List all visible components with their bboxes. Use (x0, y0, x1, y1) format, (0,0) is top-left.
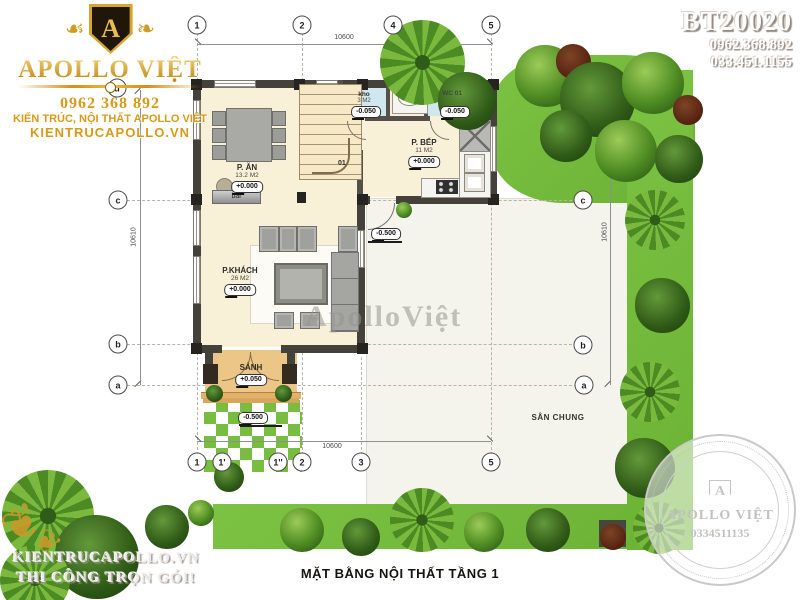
flourish-left-icon: ☙ (65, 18, 85, 40)
grid-bubble: c (574, 191, 593, 210)
column (297, 192, 306, 203)
shrub-maroon (600, 524, 626, 550)
column (191, 194, 202, 205)
dining-chair (212, 128, 226, 143)
brand-website: KIENTRUCAPOLLO.VN (6, 125, 214, 140)
seal-brand-name: APOLLO VIỆT (666, 508, 774, 524)
grid-bubble: 1'' (269, 453, 288, 472)
level-badge-hall: +0.050 (235, 374, 267, 386)
room-name: SẢNH (240, 363, 263, 372)
room-label-hall: SẢNH (240, 363, 263, 372)
grid-bubble: 2 (293, 453, 312, 472)
brand-seal: A APOLLO VIỆT 0334511135 (644, 434, 796, 586)
project-code: BT20020 (560, 6, 792, 37)
tree (280, 508, 324, 552)
shrub (396, 202, 412, 218)
dining-chair (272, 128, 286, 143)
stove (436, 180, 458, 194)
tree (342, 518, 380, 556)
dining-chair (212, 145, 226, 160)
level-badge-dining: +0.000 (231, 181, 263, 193)
porch-pillar (282, 364, 297, 384)
room-label-storage: kho 3 M2 (357, 91, 370, 105)
tree (620, 362, 680, 422)
dining-chair (212, 111, 226, 126)
dining-table (226, 108, 272, 162)
room-area: 13.2 M2 (235, 172, 259, 179)
armchair (338, 226, 358, 252)
dimension-text-right: 10610 (602, 222, 609, 241)
window (214, 80, 256, 88)
brand-monogram: A (92, 7, 130, 51)
column (357, 343, 368, 354)
brand-phone: 0962 368 892 (6, 95, 214, 113)
brand-tagline: KIẾN TRÚC, NỘI THẤT APOLLO VIỆT (6, 113, 214, 125)
level-badge-side-entry: -0.500 (371, 228, 401, 240)
shrub-maroon (673, 95, 703, 125)
room-name: WC 01 (442, 90, 462, 97)
project-phone-1: 0962.368.892 (560, 37, 792, 54)
watermark-slogan: THI CÔNG TRỌN GÓI! (6, 568, 206, 588)
yard-label: SÂN CHUNG (532, 413, 585, 422)
room-label-living: P.KHÁCH 26 M2 (222, 266, 257, 283)
dimension-line-bottom (197, 441, 491, 442)
grid-bubble: 3 (352, 453, 371, 472)
brand-name: APOLLO VIỆT (6, 56, 214, 84)
seal-monogram: A (709, 480, 731, 505)
dimension-text-top: 10600 (334, 34, 353, 41)
brand-logo-block: ☙ A ❧ APOLLO VIỆT 0962 368 892 KIẾN TRÚC… (6, 4, 214, 140)
brand-crest: ☙ A ❧ (6, 4, 214, 54)
kitchen-sink (464, 154, 485, 173)
level-badge-kitchen: +0.000 (408, 156, 440, 168)
room-name: P.KHÁCH (222, 266, 257, 275)
window (193, 210, 201, 246)
level-badge-living: +0.000 (224, 284, 256, 296)
stool (274, 312, 294, 329)
shrub (206, 385, 223, 402)
sofa-cushion (259, 226, 279, 252)
room-area: 3 M2 (357, 98, 370, 105)
stair-tag: 01 (338, 160, 346, 167)
tree (635, 278, 690, 333)
level-marker-bar (368, 241, 402, 243)
center-watermark: ApolloViệt (305, 300, 462, 334)
column (191, 343, 202, 354)
level-marker-bar (240, 425, 282, 427)
room-label-wc: WC 01 (442, 90, 462, 97)
tree (464, 512, 504, 552)
grid-bubble: 2 (293, 16, 312, 35)
room-name: P. BẾP (411, 138, 436, 147)
shrub (275, 385, 292, 402)
grid-bubble: 1' (213, 453, 232, 472)
room-label-kitchen: P. BẾP 11 M2 (411, 138, 436, 155)
grid-bubble: 1 (188, 453, 207, 472)
dimension-text-bottom: 10600 (322, 443, 341, 450)
plan-title: MẶT BẰNG NỘI THẤT TẦNG 1 (200, 566, 600, 581)
kitchen-sink (464, 173, 485, 192)
sofa-cushion (297, 226, 317, 252)
room-label-dining: P. ĂN 13.2 M2 (235, 163, 259, 180)
grid-bubble: c (109, 191, 128, 210)
tree (526, 508, 570, 552)
tree (540, 110, 592, 162)
dimension-text-left: 10610 (131, 227, 138, 246)
porch-pillar (203, 364, 218, 384)
room-name: P. ĂN (237, 163, 257, 172)
grid-bubble: 5 (482, 16, 501, 35)
level-badge-path: -0.500 (238, 412, 268, 424)
floor-plan-sheet: 10600 10600 10610 10610 (0, 0, 800, 600)
grid-bubble: 4 (384, 16, 403, 35)
flourish-right-icon: ❧ (137, 18, 155, 40)
bottom-left-watermark: KIENTRUCAPOLLO.VN THI CÔNG TRỌN GÓI! (6, 548, 206, 589)
tree (595, 120, 657, 182)
tree (438, 72, 496, 130)
grid-bubble: 5 (482, 453, 501, 472)
shield-icon: A (89, 4, 133, 54)
grid-bubble: b (109, 335, 128, 354)
grid-bubble: a (575, 376, 594, 395)
stair-handrail (312, 138, 350, 174)
tree (655, 135, 703, 183)
grid-bubble: b (574, 336, 593, 355)
grid-bubble: a (109, 376, 128, 395)
seal-inner: A APOLLO VIỆT 0334511135 (661, 451, 779, 569)
dining-chair (272, 145, 286, 160)
dining-chair (272, 111, 286, 126)
room-area: 26 M2 (222, 275, 257, 282)
level-badge-wc: -0.050 (440, 106, 470, 118)
tree (188, 500, 214, 526)
seal-phone: 0334511135 (691, 526, 750, 541)
room-area: 11 M2 (411, 147, 436, 154)
coffee-table (274, 263, 328, 305)
level-badge-storage: -0.050 (351, 106, 381, 118)
window (193, 256, 201, 304)
sofa-cushion (279, 226, 297, 252)
tree (145, 505, 189, 549)
project-phone-2: 033.451.1155 (560, 54, 792, 71)
tree (390, 488, 454, 552)
tree (625, 190, 685, 250)
watermark-website: KIENTRUCAPOLLO.VN (6, 548, 206, 568)
column (357, 194, 368, 205)
grid-line (127, 385, 577, 386)
project-reference-block: BT20020 0962.368.892 033.451.1155 (560, 6, 792, 71)
room-name: kho (358, 91, 370, 98)
